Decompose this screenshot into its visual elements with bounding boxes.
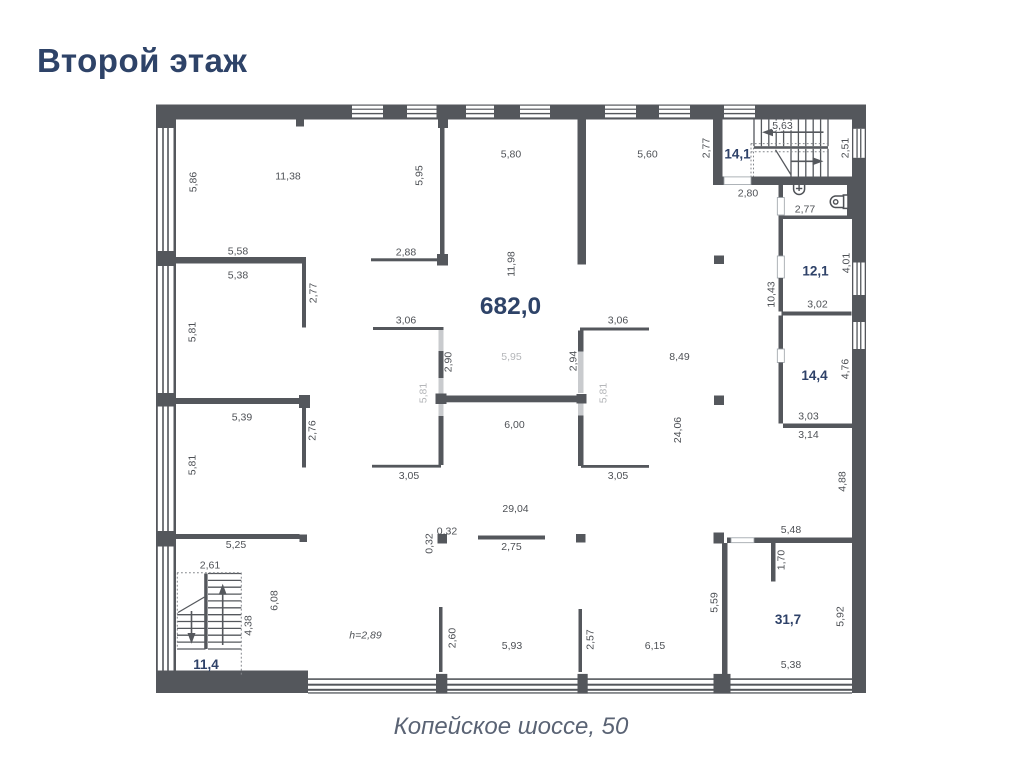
svg-text:5,60: 5,60	[637, 149, 658, 161]
svg-text:3,06: 3,06	[396, 315, 417, 327]
svg-text:11,4: 11,4	[193, 657, 219, 672]
svg-text:3,05: 3,05	[608, 470, 629, 482]
svg-text:2,80: 2,80	[738, 188, 759, 200]
svg-text:4,38: 4,38	[243, 615, 255, 636]
svg-text:5,80: 5,80	[501, 149, 522, 161]
svg-text:5,81: 5,81	[598, 383, 610, 404]
svg-text:3,14: 3,14	[798, 429, 819, 441]
svg-text:2,94: 2,94	[568, 351, 580, 372]
svg-text:2,90: 2,90	[443, 352, 455, 373]
svg-text:5,58: 5,58	[228, 246, 249, 258]
svg-text:5,25: 5,25	[226, 539, 247, 551]
svg-text:3,03: 3,03	[798, 411, 819, 423]
svg-text:12,1: 12,1	[802, 263, 829, 278]
svg-text:3,05: 3,05	[399, 470, 420, 482]
svg-text:4,88: 4,88	[837, 471, 849, 492]
svg-text:6,08: 6,08	[269, 590, 281, 611]
svg-text:Копейское шоссе, 50: Копейское шоссе, 50	[394, 713, 629, 740]
svg-text:2,60: 2,60	[447, 628, 459, 649]
svg-text:2,88: 2,88	[396, 247, 417, 259]
svg-text:1,70: 1,70	[776, 550, 788, 571]
svg-text:2,61: 2,61	[200, 560, 221, 572]
svg-text:5,86: 5,86	[188, 172, 200, 193]
svg-text:11,98: 11,98	[506, 251, 518, 277]
svg-text:5,38: 5,38	[781, 659, 802, 671]
svg-text:2,57: 2,57	[585, 629, 597, 650]
svg-text:2,51: 2,51	[840, 138, 852, 159]
svg-text:2,77: 2,77	[701, 138, 713, 159]
svg-text:h=2,89: h=2,89	[349, 630, 382, 642]
svg-text:6,00: 6,00	[504, 419, 525, 431]
svg-text:0,32: 0,32	[424, 533, 436, 554]
svg-text:0,32: 0,32	[437, 526, 458, 538]
svg-text:6,15: 6,15	[645, 640, 666, 652]
svg-text:3,06: 3,06	[608, 315, 629, 327]
svg-text:14,1: 14,1	[724, 146, 751, 161]
svg-text:5,59: 5,59	[709, 592, 721, 613]
svg-text:2,77: 2,77	[795, 204, 816, 216]
svg-text:2,75: 2,75	[501, 541, 522, 553]
svg-text:5,81: 5,81	[418, 383, 430, 404]
svg-text:5,38: 5,38	[228, 270, 249, 282]
svg-text:11,38: 11,38	[275, 171, 301, 183]
svg-text:8,49: 8,49	[669, 351, 690, 363]
svg-text:5,39: 5,39	[232, 412, 253, 424]
svg-text:5,81: 5,81	[187, 455, 199, 476]
svg-text:4,76: 4,76	[840, 359, 852, 380]
svg-text:31,7: 31,7	[775, 612, 801, 627]
svg-text:2,76: 2,76	[307, 420, 319, 441]
svg-text:5,95: 5,95	[414, 165, 426, 186]
svg-text:Второй этаж: Второй этаж	[37, 42, 247, 79]
svg-text:4,01: 4,01	[841, 253, 853, 274]
svg-text:5,63: 5,63	[772, 120, 793, 132]
svg-text:5,95: 5,95	[501, 351, 522, 363]
svg-text:29,04: 29,04	[502, 503, 528, 515]
svg-text:5,81: 5,81	[187, 322, 199, 343]
svg-text:5,48: 5,48	[781, 524, 802, 536]
svg-text:5,93: 5,93	[502, 640, 523, 652]
svg-text:3,02: 3,02	[807, 299, 828, 311]
svg-text:24,06: 24,06	[672, 417, 684, 443]
svg-text:5,92: 5,92	[835, 606, 847, 627]
svg-text:682,0: 682,0	[480, 293, 541, 320]
svg-text:14,4: 14,4	[801, 368, 828, 383]
svg-text:10,43: 10,43	[766, 281, 778, 307]
svg-text:2,77: 2,77	[308, 283, 320, 304]
